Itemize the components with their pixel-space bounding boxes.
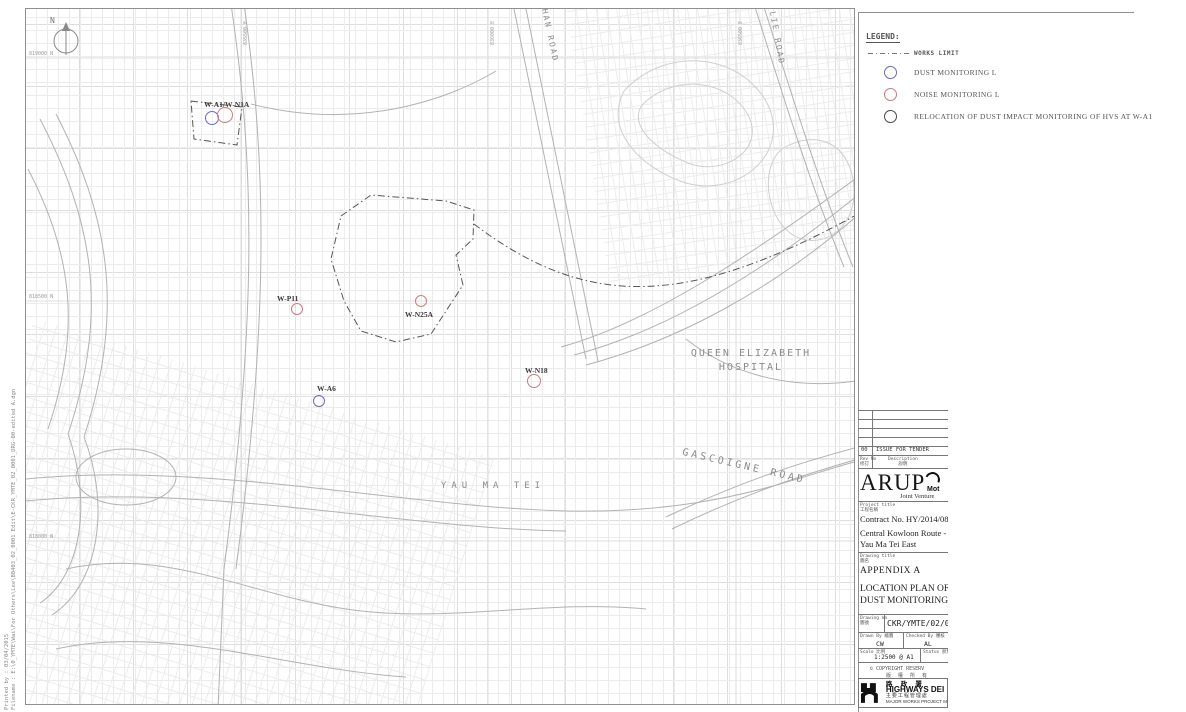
sheet-border-top — [858, 12, 1134, 13]
drawing-no-label: Drawing no 圖號 — [860, 616, 887, 626]
grid-label-east-3: 836500 E — [738, 13, 744, 45]
legend-label-noise: NOISE MONITORING L — [914, 90, 1000, 99]
station-marker-noise-wn25a — [415, 295, 427, 307]
status-label-en: Status — [923, 650, 939, 655]
project-title-label: Project title 工程名稱 — [860, 503, 895, 513]
place-label-qeh-line2: HOSPITAL — [656, 361, 846, 375]
map-canvas: N 819000 N 818500 N 818000 N 835500 E 83… — [25, 8, 855, 705]
contract-number: Contract No. HY/2014/08 — [860, 514, 948, 524]
plot-info: Printed by : 03/04/2015 Filename : E:\0_… — [4, 380, 18, 710]
drawing-title-line1: LOCATION PLAN OF N — [860, 584, 948, 594]
division-name-en: MAJOR WORKS PROJECT M — [886, 699, 947, 705]
checked-by-label-cn: 審核 — [936, 634, 945, 639]
legend-item-relocation: RELOCATION OF DUST IMPACT MONITORING OF … — [866, 110, 1182, 123]
drawing-title-line2: DUST MONITORING ST — [860, 596, 948, 606]
north-arrow-icon: N — [50, 16, 78, 55]
drawn-by-label-cn: 繪圖 — [884, 634, 893, 639]
grid-label-east-2: 836000 E — [490, 13, 496, 45]
printed-by-line: Printed by : 03/04/2015 — [4, 380, 11, 710]
drawing-no-label-cn: 圖號 — [860, 621, 869, 626]
project-name-line1: Central Kowloon Route - — [860, 528, 946, 538]
filename-line: Filename : E:\0_YMTE\Wai\For Others\Lee\… — [11, 380, 18, 710]
highways-department-logo — [859, 681, 883, 705]
rule — [858, 552, 948, 553]
grid-label-north-2: 818500 N — [29, 294, 53, 300]
mott-macdonald-logo-text: Mot — [927, 486, 939, 493]
station-marker-noise-wn1a — [217, 107, 233, 123]
legend-item-works-limit: WORKS LIMIT — [866, 50, 1182, 57]
drawn-by-value: CW — [876, 640, 884, 648]
description-label-cn: 說明 — [898, 462, 907, 467]
legend-label-relocation: RELOCATION OF DUST IMPACT MONITORING OF … — [914, 112, 1153, 121]
joint-venture-label: Joint Venture — [900, 493, 934, 500]
scale-status-divider — [920, 648, 921, 662]
project-name-line2: Yau Ma Tei East — [860, 539, 916, 549]
highways-department-box: 路 政 署 HIGHWAYS DEI 主要工程管理處 MAJOR WORKS P… — [858, 678, 948, 708]
checked-by-value: AL — [924, 640, 932, 648]
works-limit-dash-icon — [866, 53, 914, 54]
place-label-yau-ma-tei: YAU MA TEI — [418, 481, 568, 491]
revision-description: ISSUE FOR TENDER — [876, 447, 929, 453]
drawn-by-label-en: Drawn By — [860, 634, 882, 639]
station-marker-dust-wa6 — [313, 395, 325, 407]
station-marker-noise-wp11 — [291, 303, 303, 315]
drawn-by-label: Drawn By 繪圖 — [860, 634, 893, 639]
checked-by-label-en: Checked By — [906, 634, 933, 639]
status-label: Status 狀態 — [923, 650, 948, 655]
rule — [858, 648, 948, 649]
appendix-title: APPENDIX A — [860, 566, 921, 576]
drawing-number: CKR/YMTE/02/0 — [887, 619, 948, 628]
station-label-wp11: W-P11 — [277, 294, 298, 303]
status-label-cn: 狀態 — [942, 650, 948, 655]
title-block: 00 ISSUE FOR TENDER Rev No 修訂 Descriptio… — [858, 408, 948, 708]
checked-by-label: Checked By 審核 — [906, 634, 945, 639]
rev-header-desc: Description 說明 — [888, 457, 918, 467]
project-title-label-cn: 工程名稱 — [860, 508, 878, 513]
rule — [858, 614, 948, 615]
rule — [858, 501, 948, 502]
rule — [858, 707, 948, 708]
station-label-wn25a: W-N25A — [405, 310, 433, 319]
relocation-circle-icon — [866, 110, 914, 123]
legend-label-works-limit: WORKS LIMIT — [914, 50, 959, 57]
scale-label-en: Scale — [860, 650, 874, 655]
drawn-checked-divider — [903, 632, 904, 648]
grid-label-north-3: 818000 N — [29, 534, 53, 540]
legend-item-dust: DUST MONITORING L — [866, 66, 1182, 79]
highways-department-text: 路 政 署 HIGHWAYS DEI 主要工程管理處 MAJOR WORKS P… — [886, 681, 947, 705]
dust-circle-icon — [866, 66, 914, 79]
station-marker-noise-wn18 — [527, 374, 541, 388]
rule — [858, 662, 948, 663]
drawing-title-label-cn: 圖名 — [860, 559, 869, 564]
scale-value: 1:2500 @ A1 — [874, 654, 914, 661]
legend-item-noise: NOISE MONITORING L — [866, 88, 1182, 101]
legend: LEGEND: WORKS LIMIT DUST MONITORING L NO… — [866, 24, 1182, 132]
grid-label-east-1: 835500 E — [243, 13, 249, 45]
station-label-wa6: W-A6 — [317, 384, 336, 393]
legend-label-dust: DUST MONITORING L — [914, 68, 997, 77]
rule — [858, 468, 948, 469]
place-label-queen-elizabeth-hospital: QUEEN ELIZABETH HOSPITAL — [656, 347, 846, 375]
drawing-title-label: Drawing title 圖名 — [860, 554, 895, 564]
svg-text:N: N — [50, 16, 55, 25]
legend-title: LEGEND: — [866, 32, 900, 43]
grid-label-north-1: 819000 N — [29, 51, 53, 57]
place-label-qeh-line1: QUEEN ELIZABETH — [656, 347, 846, 361]
rev-no-label-cn: 修訂 — [860, 462, 869, 467]
revision-number: 00 — [861, 447, 868, 453]
noise-circle-icon — [866, 88, 914, 101]
rev-header-no: Rev No 修訂 — [860, 457, 876, 467]
